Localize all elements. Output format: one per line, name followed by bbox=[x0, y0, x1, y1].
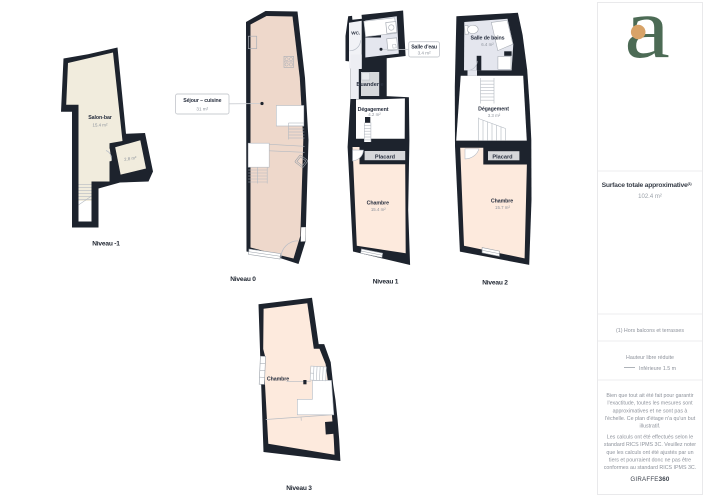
svg-text:Salle de bains: Salle de bains bbox=[471, 36, 505, 42]
svg-text:Placard: Placard bbox=[492, 154, 513, 160]
svg-text:Buanderie: Buanderie bbox=[356, 82, 383, 88]
svg-text:Les calculs ont été effectués: Les calculs ont été effectués selon le bbox=[607, 435, 694, 441]
svg-text:Hauteur libre réduite: Hauteur libre réduite bbox=[626, 355, 674, 361]
svg-text:Niveau 3: Niveau 3 bbox=[286, 485, 312, 492]
svg-text:Dégagement: Dégagement bbox=[478, 107, 509, 113]
svg-text:3.4 m²: 3.4 m² bbox=[418, 51, 431, 56]
svg-text:Niveau 0: Niveau 0 bbox=[230, 276, 256, 283]
svg-text:15.4 m²: 15.4 m² bbox=[93, 123, 108, 128]
svg-text:illustratif.: illustratif. bbox=[640, 424, 661, 430]
svg-text:standard RICS IPMS 3C. Veuille: standard RICS IPMS 3C. Veuillez noter bbox=[604, 442, 696, 448]
svg-text:Niveau -1: Niveau -1 bbox=[92, 241, 120, 248]
svg-text:WC.: WC. bbox=[351, 31, 360, 36]
svg-text:6.4 m²: 6.4 m² bbox=[481, 42, 494, 47]
svg-text:102.4 m²: 102.4 m² bbox=[638, 194, 662, 200]
svg-text:Chambre: Chambre bbox=[491, 199, 513, 205]
svg-text:l'échelle. Ce plan d'étage n'a: l'échelle. Ce plan d'étage n'a qu'un but bbox=[605, 416, 696, 422]
svg-text:Inférieure 1.5 m: Inférieure 1.5 m bbox=[639, 366, 677, 372]
svg-text:15.7 m²: 15.7 m² bbox=[495, 205, 510, 210]
svg-text:l'exactitude, toutes les mesur: l'exactitude, toutes les mesures sont bbox=[607, 401, 693, 407]
svg-text:(1) Hors balcons et terrasses: (1) Hors balcons et terrasses bbox=[616, 328, 684, 334]
svg-text:Séjour – cuisine: Séjour – cuisine bbox=[183, 98, 221, 104]
svg-text:Niveau 1: Niveau 1 bbox=[373, 279, 399, 286]
svg-text:a: a bbox=[624, 3, 670, 76]
svg-text:tiers et pourraient donc ne pa: tiers et pourraient donc ne pas être bbox=[609, 457, 691, 463]
svg-text:15.4 m²: 15.4 m² bbox=[371, 207, 386, 212]
svg-text:approximatives et ne sont pas: approximatives et ne sont pas à bbox=[613, 408, 688, 414]
svg-text:4.2 m²: 4.2 m² bbox=[368, 112, 381, 117]
svg-text:Placard: Placard bbox=[375, 154, 396, 160]
svg-text:Niveau 2: Niveau 2 bbox=[482, 280, 508, 287]
svg-text:conformes au standard RICS IPM: conformes au standard RICS IPMS 3C. bbox=[604, 465, 696, 471]
svg-text:GIRAFFE360: GIRAFFE360 bbox=[630, 476, 670, 483]
svg-text:Bien que tout ait été fait pou: Bien que tout ait été fait pour garantir bbox=[606, 393, 693, 399]
svg-text:Salon-bar: Salon-bar bbox=[88, 115, 112, 121]
svg-text:3.3 m²: 3.3 m² bbox=[488, 113, 501, 118]
svg-text:Chambre: Chambre bbox=[267, 377, 289, 383]
svg-text:Salle d'eau: Salle d'eau bbox=[411, 44, 437, 50]
svg-text:Chambre: Chambre bbox=[367, 201, 389, 207]
svg-text:Surface totale approximative(1: Surface totale approximative(1) bbox=[602, 182, 693, 189]
svg-text:que les calculs ont été ajusté: que les calculs ont été ajustés par un bbox=[606, 450, 693, 456]
svg-text:31 m²: 31 m² bbox=[196, 107, 208, 112]
